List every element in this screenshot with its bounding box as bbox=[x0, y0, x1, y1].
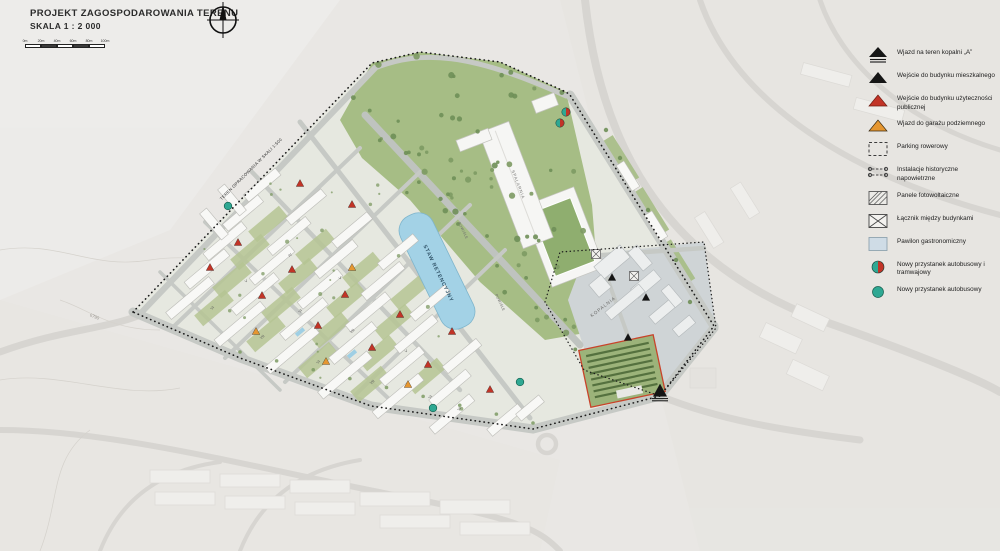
map-label: 6790 bbox=[89, 312, 100, 321]
public-entry-icon bbox=[866, 92, 890, 110]
marker-stop-bus bbox=[516, 378, 524, 386]
marker-stop-bus bbox=[429, 404, 437, 412]
legend-item-label: Panele fotowoltaiczne bbox=[897, 189, 959, 201]
legend-item-label: Nowy przystanek autobusowy i tramwajowy bbox=[897, 258, 996, 278]
marker-stop-tram bbox=[562, 108, 570, 116]
legend-item-mine-entry: Wjazd na teren kopalni „A” bbox=[866, 46, 996, 64]
legend-item-label: Nowy przystanek autobusowy bbox=[897, 283, 982, 295]
legend-item-label: Wjazd do garażu podziemnego bbox=[897, 117, 985, 129]
dwelling-entry-icon bbox=[866, 69, 890, 87]
legend-item-label: Instalacje historyczne napowietrzne bbox=[897, 163, 996, 183]
legend-item-label: Łącznik między budynkami bbox=[897, 212, 973, 224]
historic-lines-icon bbox=[866, 163, 890, 181]
north-arrow-icon bbox=[204, 1, 242, 39]
new-bus-tram-stop-icon bbox=[866, 258, 890, 276]
mine-entry-icon bbox=[866, 46, 890, 64]
legend-item-label: Parking rowerowy bbox=[897, 140, 948, 152]
scale-bar-label: 40m bbox=[50, 39, 64, 43]
legend-item-historic-lines: Instalacje historyczne napowietrzne bbox=[866, 163, 996, 183]
scale-bar-label: 80m bbox=[82, 39, 96, 43]
scale-bar-label: 0m bbox=[18, 39, 32, 43]
scale-bar-label: 100m bbox=[98, 39, 112, 43]
legend-item-new-bus-tram-stop: Nowy przystanek autobusowy i tramwajowy bbox=[866, 258, 996, 278]
gastro-pavilion-icon bbox=[866, 235, 890, 253]
legend-item-public-entry: Wejście do budynku użyteczności publiczn… bbox=[866, 92, 996, 112]
scale-bar: 0m20m40m60m80m100m bbox=[25, 39, 109, 51]
legend-item-garage-entry: Wjazd do garażu podziemnego bbox=[866, 117, 996, 135]
bike-parking-icon bbox=[866, 140, 890, 158]
scale-bar-segment bbox=[57, 44, 73, 48]
scale-bar-label: 60m bbox=[66, 39, 80, 43]
garage-entry-icon bbox=[866, 117, 890, 135]
scale-bar-segment bbox=[89, 44, 105, 48]
pv-panels-icon bbox=[866, 189, 890, 207]
legend-item-label: Wejście do budynku użyteczności publiczn… bbox=[897, 92, 996, 112]
legend-item-gastro-pavilion: Pawilon gastronomiczny bbox=[866, 235, 996, 253]
legend-item-dwelling-entry: Wejście do budynku mieszkalnego bbox=[866, 69, 996, 87]
legend-item-pv-panels: Panele fotowoltaiczne bbox=[866, 189, 996, 207]
building-link-icon bbox=[866, 212, 890, 230]
site-plan-map: STAW RETENCYJNYTEREN OPRACOWANIA W SKALI… bbox=[0, 0, 1000, 551]
legend-item-label: Pawilon gastronomiczny bbox=[897, 235, 966, 247]
legend-item-label: Wejście do budynku mieszkalnego bbox=[897, 69, 995, 81]
marker-stop-tram bbox=[556, 119, 564, 127]
legend-item-new-bus-stop: Nowy przystanek autobusowy bbox=[866, 283, 996, 301]
legend-item-bike-parking: Parking rowerowy bbox=[866, 140, 996, 158]
legend-item-building-link: Łącznik między budynkami bbox=[866, 212, 996, 230]
site-plan-canvas: STAW RETENCYJNYTEREN OPRACOWANIA W SKALI… bbox=[0, 0, 1000, 551]
scale-bar-segment bbox=[25, 44, 41, 48]
scale-bar-segment bbox=[41, 44, 57, 48]
legend-item-label: Wjazd na teren kopalni „A” bbox=[897, 46, 972, 58]
scale-bar-label: 20m bbox=[34, 39, 48, 43]
marker-stop-bus bbox=[224, 202, 232, 210]
legend: Wjazd na teren kopalni „A”Wejście do bud… bbox=[866, 46, 996, 306]
scale-bar-segment bbox=[73, 44, 89, 48]
new-bus-stop-icon bbox=[866, 283, 890, 301]
